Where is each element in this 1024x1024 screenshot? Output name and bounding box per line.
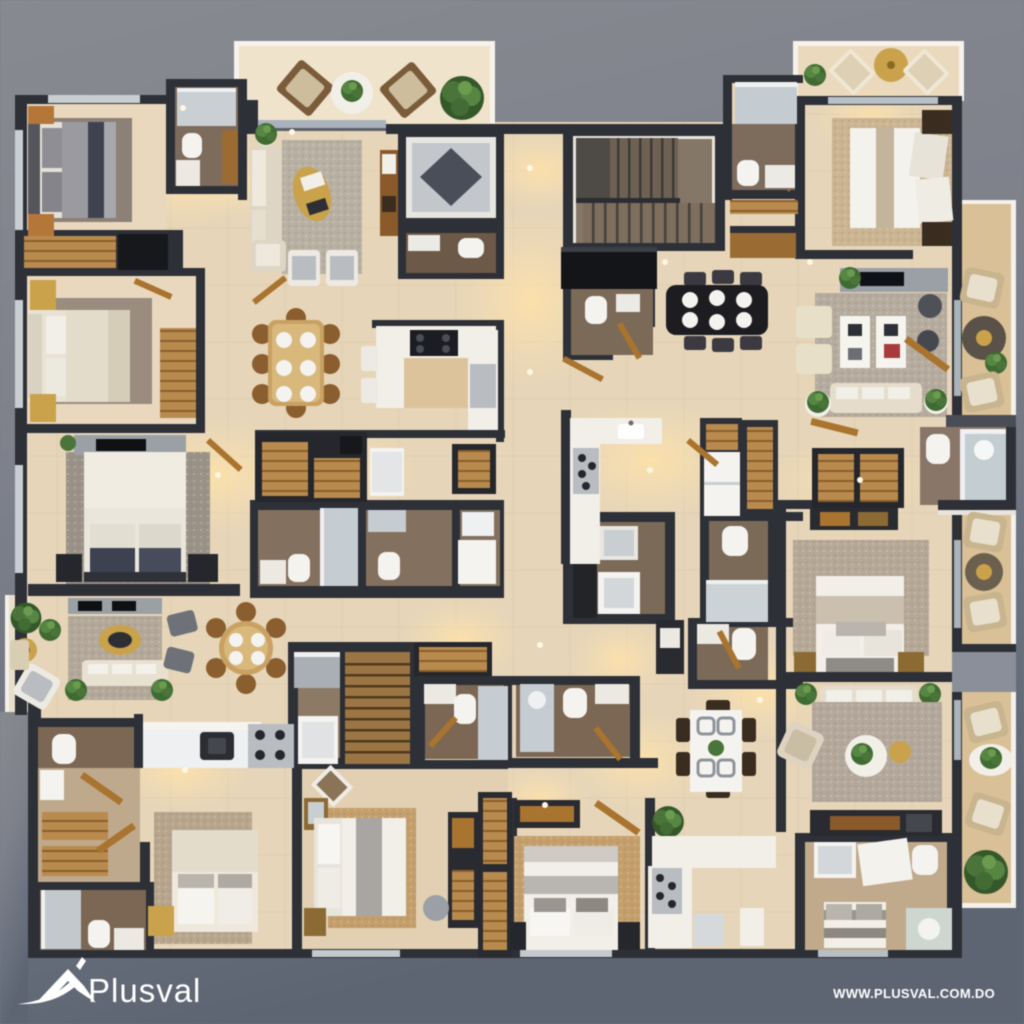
svg-text:WWW.PLUSVAL.COM.DO: WWW.PLUSVAL.COM.DO (833, 986, 995, 1001)
svg-text:Plusval: Plusval (88, 972, 201, 1009)
